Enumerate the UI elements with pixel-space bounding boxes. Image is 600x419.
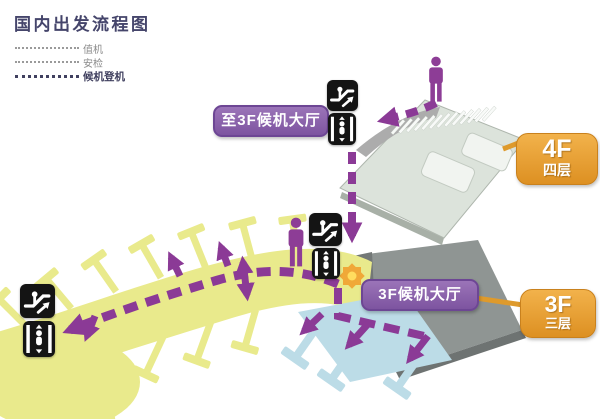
legend-item-checkin: 值机 xyxy=(15,42,125,54)
elevator-icon xyxy=(328,113,356,145)
floor-badge-4f: 4F 四层 xyxy=(516,133,598,185)
legend-item-security: 安检 xyxy=(15,56,125,68)
escalator-icon xyxy=(309,213,342,246)
sign-3f-hall: 3F候机大厅 xyxy=(361,279,479,311)
passenger-icon xyxy=(283,217,309,269)
legend-line-thin-dotted xyxy=(15,61,79,63)
escalator-icon xyxy=(327,80,358,111)
page-title: 国内出发流程图 xyxy=(14,10,151,35)
legend-line-bold-dotted xyxy=(15,75,79,78)
legend-label: 值机 xyxy=(83,41,103,56)
departure-flow-diagram: 国内出发流程图 值机 安检 候机登机 至3F候机大厅 3F候机大厅 4F 四层 … xyxy=(0,0,600,419)
escalator-icon xyxy=(20,284,55,318)
legend: 值机 安检 候机登机 xyxy=(15,42,125,84)
floor-code: 3F xyxy=(521,292,595,316)
floor-badge-3f: 3F 三层 xyxy=(520,289,596,338)
floor-name: 四层 xyxy=(517,162,597,178)
hall-4f-floorplate xyxy=(340,100,525,245)
arrow-branch-gate-1 xyxy=(171,257,180,276)
sign-to-3f-hall: 至3F候机大厅 xyxy=(213,105,329,137)
elevator-icon xyxy=(312,248,340,279)
floor-code: 4F xyxy=(517,136,597,162)
legend-line-thin-dotted xyxy=(15,47,79,49)
arrow-branch-gate-3 xyxy=(243,262,247,295)
legend-label: 安检 xyxy=(83,55,103,70)
elevator-icon xyxy=(23,321,55,357)
legend-item-boarding: 候机登机 xyxy=(15,70,125,82)
passenger-icon xyxy=(424,55,448,105)
legend-label: 候机登机 xyxy=(83,69,125,84)
floor-name: 三层 xyxy=(521,316,595,331)
